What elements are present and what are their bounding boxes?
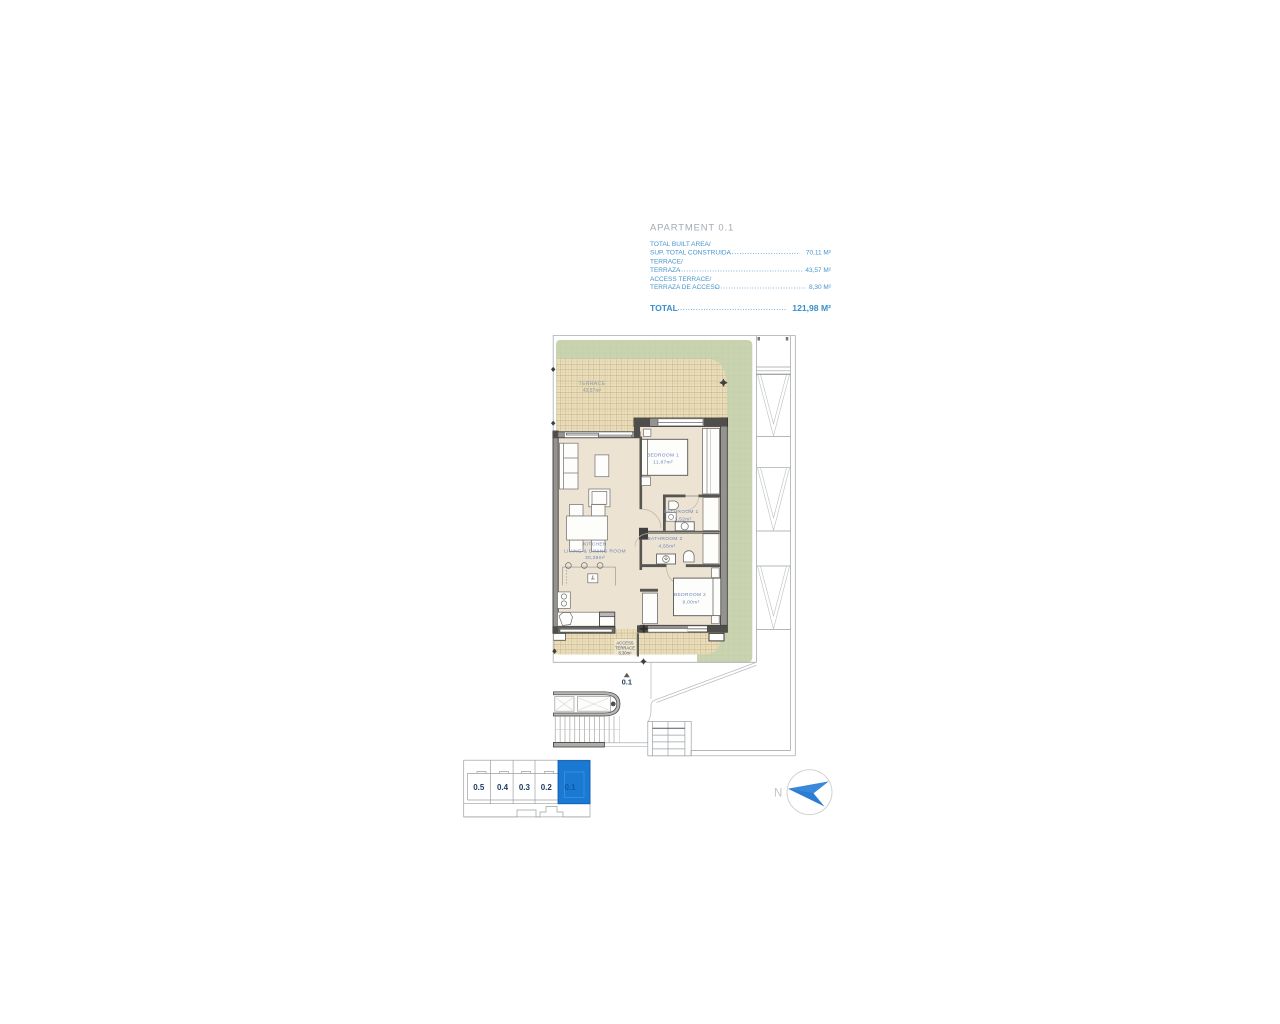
svg-text:4,55m²: 4,55m² [658, 544, 675, 550]
svg-text:0.3: 0.3 [519, 783, 531, 792]
svg-text:0.1: 0.1 [622, 678, 632, 687]
svg-text:0.2: 0.2 [541, 783, 553, 792]
svg-text:TERRAZA DE ACCESO: TERRAZA DE ACCESO [650, 284, 720, 291]
svg-text:0.1: 0.1 [564, 783, 576, 792]
svg-text:BATHROOM 1: BATHROOM 1 [664, 509, 699, 515]
svg-text:TERRACE: TERRACE [579, 381, 606, 387]
svg-text:70,11 M²: 70,11 M² [806, 250, 832, 257]
svg-text:30,29m²: 30,29m² [585, 555, 605, 561]
svg-text:APARTMENT 0.1: APARTMENT 0.1 [650, 222, 734, 233]
svg-text:11,87m²: 11,87m² [653, 460, 673, 466]
svg-text:TOTAL BUILT AREA/: TOTAL BUILT AREA/ [650, 241, 711, 248]
svg-text:SUP. TOTAL CONSTRUIDA: SUP. TOTAL CONSTRUIDA [650, 250, 732, 257]
svg-text:ACCESS TERRACE/: ACCESS TERRACE/ [650, 276, 711, 283]
svg-text:8,30m²: 8,30m² [618, 651, 632, 656]
svg-text:LIVING & DINING ROOM: LIVING & DINING ROOM [564, 549, 626, 555]
svg-text:BEDROOM 2: BEDROOM 2 [674, 592, 706, 598]
svg-text:8,30 M²: 8,30 M² [809, 284, 832, 291]
svg-text:0.4: 0.4 [497, 783, 509, 792]
svg-text:BATHROOM 2: BATHROOM 2 [648, 536, 683, 542]
svg-text:43,57m²: 43,57m² [583, 388, 602, 394]
svg-text:BEDROOM 1: BEDROOM 1 [647, 453, 679, 459]
svg-text:9,00m²: 9,00m² [682, 600, 699, 606]
svg-text:43,57 M²: 43,57 M² [805, 267, 831, 274]
svg-text:3,52m²: 3,52m² [674, 517, 691, 523]
svg-text:TOTAL: TOTAL [650, 303, 678, 313]
svg-text:KITCHEN: KITCHEN [583, 542, 607, 548]
svg-text:N: N [774, 788, 782, 800]
svg-text:TERRAZA: TERRAZA [650, 267, 681, 274]
svg-text:121,98 M²: 121,98 M² [792, 303, 831, 313]
svg-text:0.5: 0.5 [473, 783, 485, 792]
svg-text:TERRACE/: TERRACE/ [650, 259, 683, 266]
